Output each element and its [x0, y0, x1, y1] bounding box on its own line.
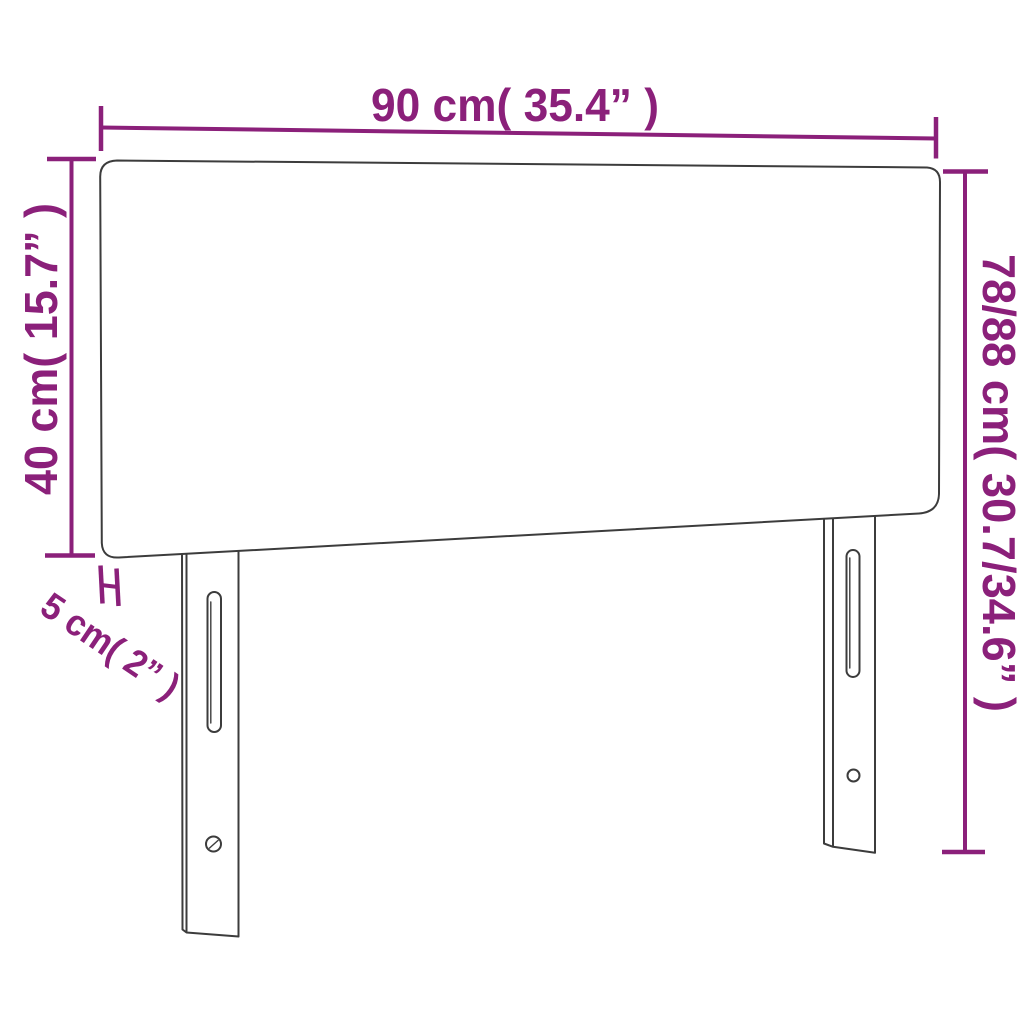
right-height-dimension: 78/88 cm( 30.7/34.6” ): [942, 172, 1024, 853]
thickness-dimension-connector: [101, 585, 118, 587]
width-dimension-label: 90 cm( 35.4” ): [371, 79, 659, 131]
headboard-panel: [100, 161, 940, 558]
right-leg-group: [824, 508, 875, 853]
right-height-dimension-label: 78/88 cm( 30.7/34.6” ): [973, 254, 1024, 712]
left-height-dimension: 40 cm( 15.7” ): [15, 159, 96, 556]
left-height-dimension-label: 40 cm( 15.7” ): [15, 203, 67, 495]
left-leg-group: [182, 545, 239, 937]
thickness-dimension: 5 cm( 2” ): [34, 566, 188, 707]
width-dimension: 90 cm( 35.4” ): [101, 79, 936, 159]
thickness-dimension-label: 5 cm( 2” ): [34, 585, 188, 707]
headboard-dimension-diagram: 90 cm( 35.4” ) 40 cm( 15.7” ) 78/88 cm( …: [0, 0, 1024, 1024]
diagram-svg: 90 cm( 35.4” ) 40 cm( 15.7” ) 78/88 cm( …: [0, 0, 1024, 1024]
